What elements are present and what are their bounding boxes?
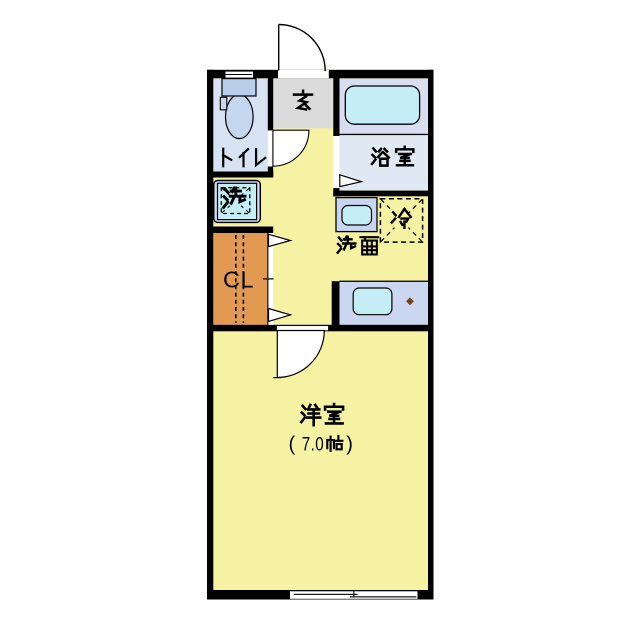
svg-text:CL: CL [223, 267, 254, 293]
svg-text:): ) [346, 433, 353, 455]
svg-text:(: ( [289, 433, 296, 455]
svg-text:7.0: 7.0 [302, 432, 324, 454]
